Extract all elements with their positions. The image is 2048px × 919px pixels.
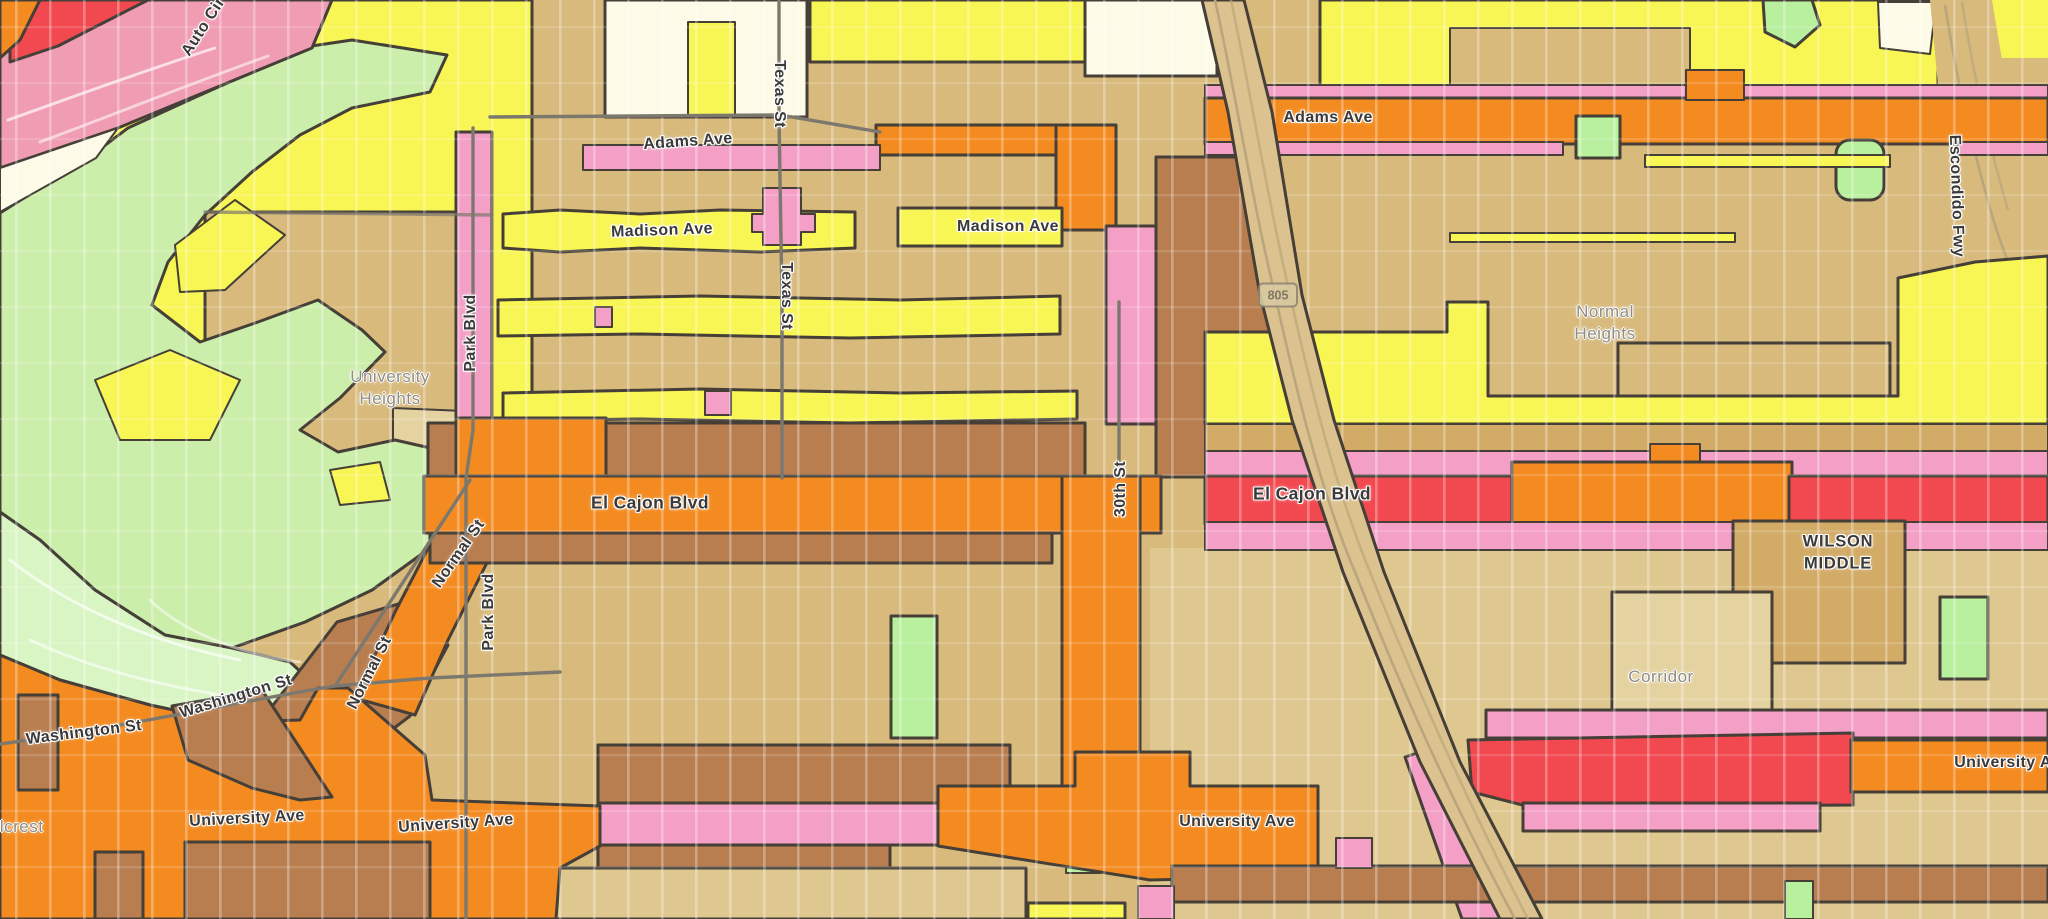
interstate-805-shield: 805 bbox=[1258, 283, 1298, 308]
street-label-30th-st: 30th St bbox=[1112, 461, 1130, 517]
street-label-adams-ave-e: Adams Ave bbox=[1283, 109, 1373, 127]
street-label-park-blvd-n: Park Blvd bbox=[462, 294, 480, 371]
street-label-park-blvd-s: Park Blvd bbox=[480, 573, 498, 650]
school-label-wilson-middle: WILSON MIDDLE bbox=[1803, 531, 1874, 576]
street-label-madison-ave-w: Madison Ave bbox=[611, 220, 713, 242]
street-label-texas-st-s: Texas St bbox=[777, 262, 795, 330]
street-label-university-ave-3: University Ave bbox=[1179, 813, 1295, 831]
street-label-texas-st-n: Texas St bbox=[770, 60, 788, 128]
zoning-map-svg[interactable] bbox=[0, 0, 2048, 919]
street-label-el-cajon-blvd-e: El Cajon Blvd bbox=[1253, 484, 1371, 505]
neighborhood-label-university-heights: University Heights bbox=[350, 366, 430, 410]
neighborhood-label-normal-heights: Normal Heights bbox=[1574, 301, 1635, 345]
zoning-map-canvas[interactable]: Auto Cir Adams Ave Adams Ave Madison Ave… bbox=[0, 0, 2048, 919]
neighborhood-label-corridor: Corridor bbox=[1628, 666, 1693, 688]
street-label-madison-ave-e: Madison Ave bbox=[957, 218, 1059, 236]
street-label-university-ave-4: University Ave bbox=[1954, 754, 2048, 772]
street-label-el-cajon-blvd-w: El Cajon Blvd bbox=[591, 493, 709, 514]
street-grid-overlay bbox=[0, 0, 2048, 919]
neighborhood-label-hillcrest: Hillcrest bbox=[0, 816, 43, 838]
